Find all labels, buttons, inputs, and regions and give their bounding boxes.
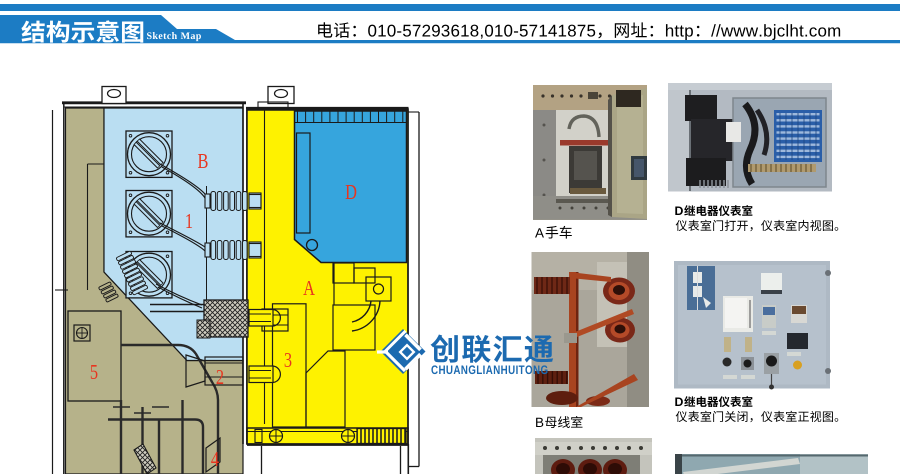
svg-text:A: A — [303, 277, 315, 300]
svg-text:B: B — [198, 150, 209, 173]
svg-text:4: 4 — [211, 448, 220, 471]
svg-text:2: 2 — [216, 366, 224, 389]
svg-text:5: 5 — [90, 361, 98, 384]
svg-text:D: D — [345, 181, 357, 204]
svg-text:1: 1 — [185, 210, 193, 233]
svg-text:3: 3 — [284, 349, 292, 372]
